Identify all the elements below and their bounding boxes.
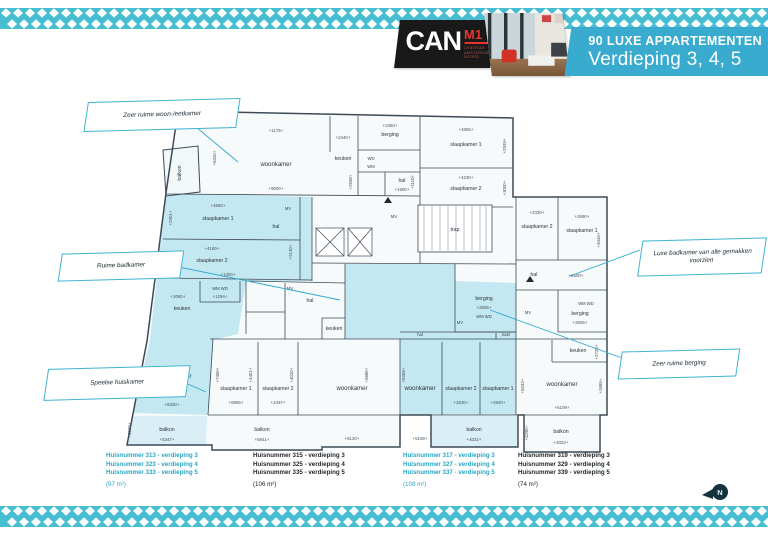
svg-text:+2440+: +2440+ — [336, 135, 351, 140]
svg-text:slaapkamer 1: slaapkamer 1 — [220, 386, 251, 392]
svg-text:+5320+: +5320+ — [212, 150, 217, 165]
svg-text:+4660+: +4660+ — [211, 203, 226, 208]
svg-text:WM: WM — [367, 164, 375, 169]
svg-text:hal: hal — [399, 178, 406, 184]
legend-area: (108 m²) — [403, 481, 495, 490]
legend-line: Huisnummer 337 - verdieping 5 — [403, 469, 495, 478]
svg-text:+4020+: +4020+ — [289, 367, 294, 382]
legend-line: Huisnummer 325 - verdieping 4 — [253, 461, 345, 470]
svg-text:MV: MV — [285, 206, 291, 211]
svg-text:+2690+: +2690+ — [575, 214, 590, 219]
elevator-shafts — [316, 228, 372, 256]
svg-text:+2939+: +2939+ — [502, 138, 507, 153]
legend-line: Huisnummer 317 - verdieping 3 — [403, 452, 495, 461]
svg-text:woonkamer: woonkamer — [259, 162, 291, 168]
svg-text:+1294+: +1294+ — [213, 294, 228, 299]
svg-text:balkon: balkon — [159, 427, 174, 433]
svg-text:berging: berging — [571, 311, 588, 317]
svg-text:+5347+: +5347+ — [160, 437, 175, 442]
svg-text:balkon: balkon — [254, 427, 269, 433]
svg-text:slaapkamer 1: slaapkamer 1 — [566, 228, 597, 234]
svg-text:+3290+: +3290+ — [524, 425, 529, 440]
north-badge: N — [702, 484, 728, 500]
svg-text:woonkamer: woonkamer — [335, 386, 367, 392]
svg-text:+4865+: +4865+ — [459, 127, 474, 132]
svg-text:+2901+: +2901+ — [168, 210, 173, 225]
svg-text:woonkamer: woonkamer — [545, 382, 577, 388]
svg-text:hal: hal — [273, 224, 280, 230]
svg-text:+2437+: +2437+ — [271, 400, 286, 405]
north-letter: N — [717, 488, 722, 497]
svg-text:+1110+: +1110+ — [410, 174, 415, 189]
svg-text:+5941+: +5941+ — [255, 437, 270, 442]
svg-text:+2330+: +2330+ — [530, 210, 545, 215]
svg-text:slaapkamer 1: slaapkamer 1 — [482, 386, 513, 392]
svg-text:keuken: keuken — [570, 348, 587, 354]
svg-text:balkon: balkon — [466, 427, 481, 433]
svg-text:+6955+: +6955+ — [229, 400, 244, 405]
legend-unit-317: Huisnummer 317 - verdieping 3 Huisnummer… — [403, 452, 495, 489]
svg-text:+2350+: +2350+ — [383, 123, 398, 128]
legend-unit-319: Huisnummer 319 - verdieping 3 Huisnummer… — [518, 452, 610, 489]
svg-text:slaapkamer 2: slaapkamer 2 — [450, 186, 481, 192]
legend-line: Huisnummer 327 - verdieping 4 — [403, 461, 495, 470]
svg-text:+3443+: +3443+ — [596, 232, 601, 247]
svg-text:+2505+: +2505+ — [573, 320, 588, 325]
legend-line: Huisnummer 315 - verdieping 3 — [253, 452, 345, 461]
svg-text:keuken: keuken — [174, 306, 191, 312]
callout-speelse-huiskamer: Speelse huiskamer — [43, 365, 190, 401]
svg-text:+6880+: +6880+ — [364, 367, 369, 382]
svg-text:+3000+: +3000+ — [502, 180, 507, 195]
svg-text:WM WD: WM WD — [578, 301, 594, 306]
svg-text:MV: MV — [525, 310, 531, 315]
svg-text:slaapkamer 1: slaapkamer 1 — [202, 216, 233, 222]
svg-text:slaapkamer 2: slaapkamer 2 — [262, 386, 293, 392]
svg-text:+2060+: +2060+ — [171, 294, 186, 299]
svg-text:hal: hal — [531, 272, 538, 278]
svg-text:+2130+: +2130+ — [288, 244, 293, 259]
svg-text:hal: hal — [307, 298, 314, 304]
legend-unit-315: Huisnummer 315 - verdieping 3 Huisnummer… — [253, 452, 345, 489]
svg-text:balkon: balkon — [177, 165, 183, 180]
svg-text:+9000+: +9000+ — [269, 186, 284, 191]
legend-area: (106 m²) — [253, 481, 345, 490]
svg-text:berging: berging — [475, 296, 492, 302]
svg-text:+7450+: +7450+ — [215, 367, 220, 382]
legend-line: Huisnummer 333 - verdieping 5 — [106, 469, 198, 478]
svg-text:+2938+: +2938+ — [348, 174, 353, 189]
svg-text:+8330+: +8330+ — [165, 402, 180, 407]
legend-unit-313: Huisnummer 313 - verdieping 3 Huisnummer… — [106, 452, 198, 489]
callout-zeer-ruime-berging: Zeer ruime berging — [618, 348, 741, 379]
svg-text:WM WD: WM WD — [476, 314, 492, 319]
svg-text:trap: trap — [451, 227, 460, 233]
svg-text:+1175+: +1175+ — [269, 128, 284, 133]
svg-text:+2505+: +2505+ — [477, 305, 492, 310]
svg-text:+5108+: +5108+ — [413, 436, 428, 441]
brochure-page: CAN M1 CENTRUM AMSTERDAM NOORD — [0, 0, 768, 543]
svg-text:+1885+: +1885+ — [598, 378, 603, 393]
svg-text:+4022+: +4022+ — [554, 440, 569, 445]
legend-line: Huisnummer 335 - verdieping 5 — [253, 469, 345, 478]
svg-text:+3230+: +3230+ — [454, 400, 469, 405]
svg-text:+2725+: +2725+ — [594, 344, 599, 359]
svg-text:slaapkamer 2: slaapkamer 2 — [445, 386, 476, 392]
legend-area: (97 m²) — [106, 481, 198, 490]
svg-text:MV: MV — [457, 320, 463, 325]
svg-text:+4230+: +4230+ — [459, 175, 474, 180]
svg-text:+1900+: +1900+ — [395, 187, 410, 192]
svg-text:kast: kast — [502, 332, 511, 337]
legend-area: (74 m²) — [518, 481, 610, 490]
legend-line: Huisnummer 319 - verdieping 3 — [518, 452, 610, 461]
svg-text:+2940+: +2940+ — [491, 400, 506, 405]
svg-text:slaapkamer 2: slaapkamer 2 — [521, 224, 552, 230]
legend-line: Huisnummer 323 - verdieping 4 — [106, 461, 198, 470]
callout-luxe-badkamer: Luxe badkamer van alle gemakken voorzien — [637, 237, 767, 276]
svg-text:keuken: keuken — [326, 326, 343, 332]
svg-text:+4180+: +4180+ — [205, 246, 220, 251]
svg-text:berging: berging — [381, 132, 398, 138]
callout-woon-eetkamer: Zeer ruime woon-/eetkamer — [83, 98, 240, 132]
svg-text:+5343+: +5343+ — [520, 378, 525, 393]
callout-ruime-badkamer: Ruime badkamer — [58, 250, 185, 281]
svg-text:+2320+: +2320+ — [127, 422, 132, 437]
svg-text:+5109+: +5109+ — [555, 405, 570, 410]
svg-text:balkon: balkon — [553, 429, 568, 435]
svg-text:hal: hal — [417, 332, 423, 337]
svg-text:MV: MV — [391, 214, 397, 219]
svg-text:slaapkamer 1: slaapkamer 1 — [450, 142, 481, 148]
svg-text:slaapkamer 2: slaapkamer 2 — [196, 258, 227, 264]
legend-line: Huisnummer 313 - verdieping 3 — [106, 452, 198, 461]
svg-text:+5365+: +5365+ — [401, 367, 406, 382]
legend-line: Huisnummer 329 - verdieping 4 — [518, 461, 610, 470]
svg-text:keuken: keuken — [335, 156, 352, 162]
svg-text:WM WD: WM WD — [212, 286, 228, 291]
svg-text:+4401+: +4401+ — [248, 367, 253, 382]
svg-text:woonkamer: woonkamer — [403, 386, 435, 392]
svg-text:+4022+: +4022+ — [467, 437, 482, 442]
legend-line: Huisnummer 339 - verdieping 5 — [518, 469, 610, 478]
svg-text:WD: WD — [368, 156, 375, 161]
svg-text:+5120+: +5120+ — [345, 436, 360, 441]
